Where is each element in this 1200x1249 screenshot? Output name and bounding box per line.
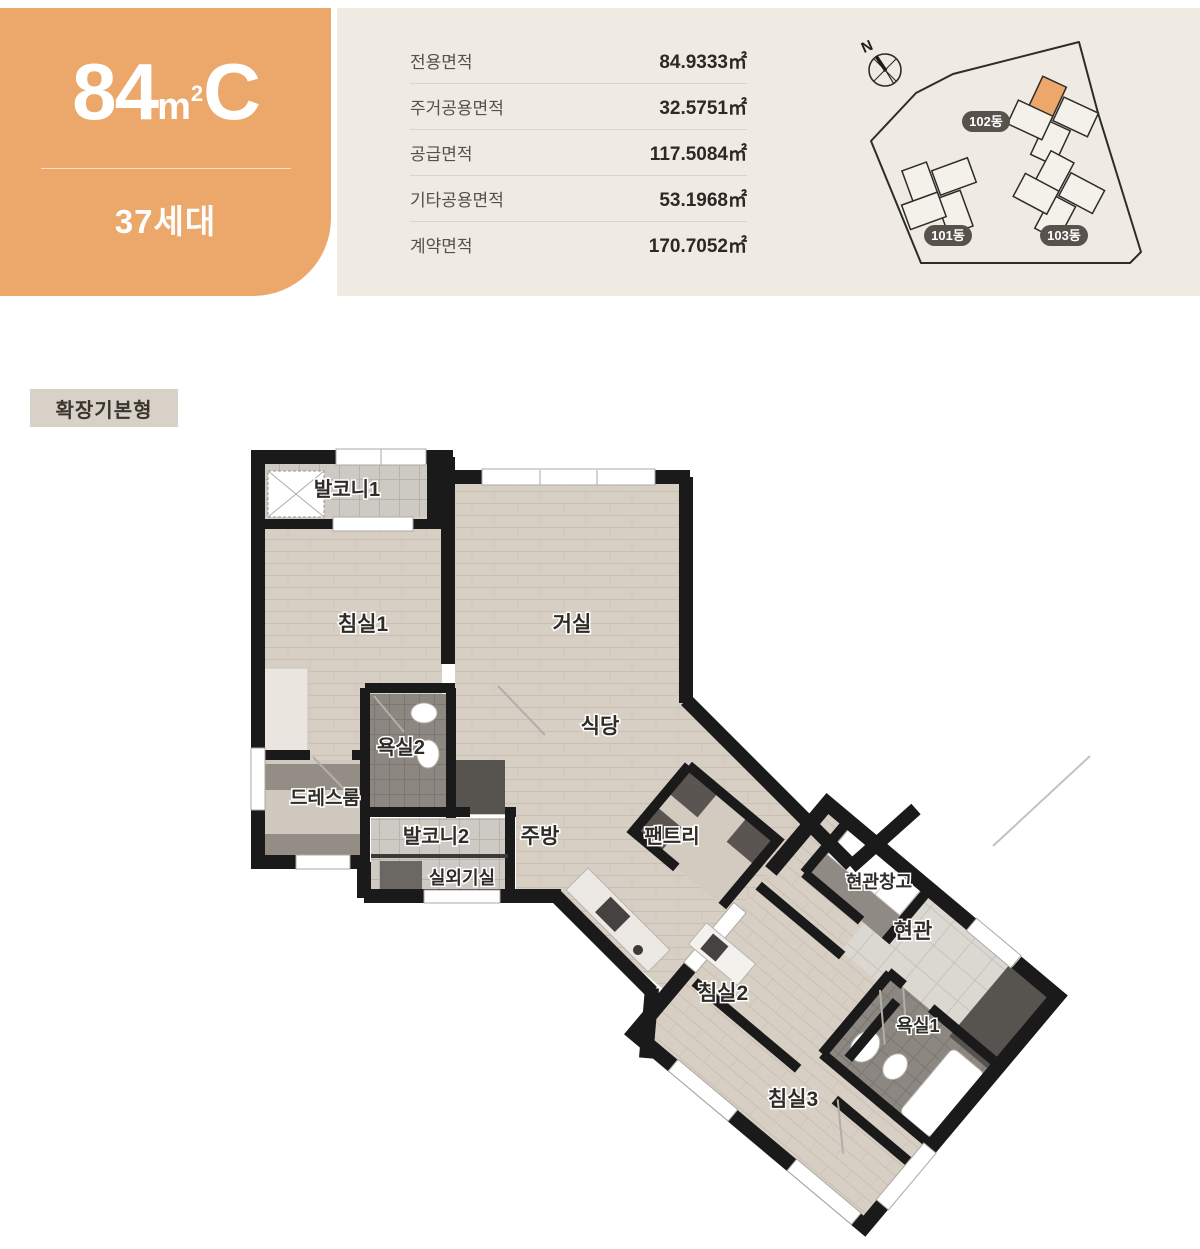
unit-type-letter: C (203, 47, 259, 136)
room-label-entry: 현관 (894, 920, 933, 943)
room-label-bedroom2: 침실2 (698, 982, 748, 1005)
area-value: 117.5084㎡ (650, 139, 747, 166)
room-label-entry-storage: 현관창고 (846, 872, 912, 892)
room-label-dressroom: 드레스룸 (290, 787, 360, 809)
table-row: 주거공용면적 32.5751㎡ (410, 84, 747, 130)
table-row: 기타공용면적 53.1968㎡ (410, 176, 747, 222)
info-panel: 전용면적 84.9333㎡ 주거공용면적 32.5751㎡ 공급면적 117.5… (337, 8, 1200, 296)
room-label-pantry: 팬트리 (644, 825, 699, 848)
area-value: 170.7052㎡ (649, 231, 747, 258)
room-label-bedroom1: 침실1 (338, 613, 389, 636)
area-label: 주거공용면적 (410, 94, 530, 119)
unit-size: 84 (72, 47, 157, 136)
table-row: 공급면적 117.5084㎡ (410, 130, 747, 176)
table-row: 계약면적 170.7052㎡ (410, 222, 747, 267)
area-table: 전용면적 84.9333㎡ 주거공용면적 32.5751㎡ 공급면적 117.5… (410, 38, 747, 267)
room-label-bathroom2: 욕실2 (377, 736, 425, 759)
area-value: 32.5751㎡ (659, 93, 747, 120)
compass-icon: N (859, 37, 901, 86)
floor-plan: 발코니1 침실1 거실 식당 욕실2 드레스룸 발코니2 주방 팬트리 실외기실… (0, 430, 1200, 1249)
building-label-103: 103동 (1040, 225, 1088, 246)
room-label-bedroom3: 침실3 (768, 1088, 818, 1111)
building-label-101: 101동 (924, 225, 972, 246)
svg-text:102동: 102동 (969, 114, 1003, 129)
room-label-bathroom1: 욕실1 (896, 1016, 939, 1036)
table-row: 전용면적 84.9333㎡ (410, 38, 747, 84)
area-label: 공급면적 (410, 140, 530, 165)
room-label-kitchen: 주방 (521, 825, 560, 848)
plan-type-badge: 확장기본형 (30, 389, 178, 427)
room-label-balcony2: 발코니2 (403, 825, 469, 848)
card-divider (41, 168, 291, 169)
area-label: 기타공용면적 (410, 186, 530, 211)
svg-text:103동: 103동 (1047, 228, 1081, 243)
area-label: 계약면적 (410, 232, 530, 257)
site-plan-map: N 102동 (850, 20, 1180, 280)
unit-title: 84m2C (72, 52, 259, 132)
compass-n-label: N (859, 37, 876, 57)
area-value: 84.9333㎡ (659, 47, 747, 74)
room-label-dining: 식당 (581, 715, 620, 738)
building-label-102: 102동 (962, 111, 1010, 132)
entry-leader-line (993, 756, 1090, 846)
svg-text:101동: 101동 (931, 228, 965, 243)
room-label-balcony1: 발코니1 (314, 478, 380, 501)
room-label-living: 거실 (553, 613, 592, 636)
unit-area-symbol: m (157, 86, 191, 128)
area-value: 53.1968㎡ (659, 185, 747, 212)
households-count: 37세대 (115, 195, 216, 243)
room-label-utility: 실외기실 (429, 868, 495, 888)
area-label: 전용면적 (410, 48, 530, 73)
unit-type-card: 84m2C 37세대 (0, 8, 331, 296)
